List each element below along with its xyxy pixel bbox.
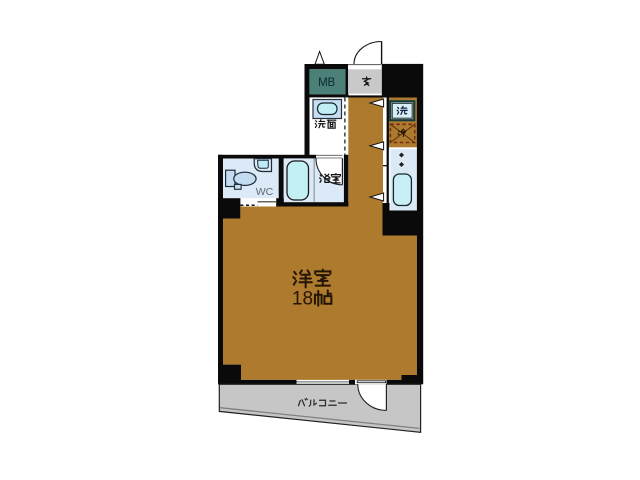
svg-text:18: 18	[292, 289, 313, 310]
svg-text:WC: WC	[256, 186, 274, 198]
svg-text:MB: MB	[318, 77, 335, 89]
